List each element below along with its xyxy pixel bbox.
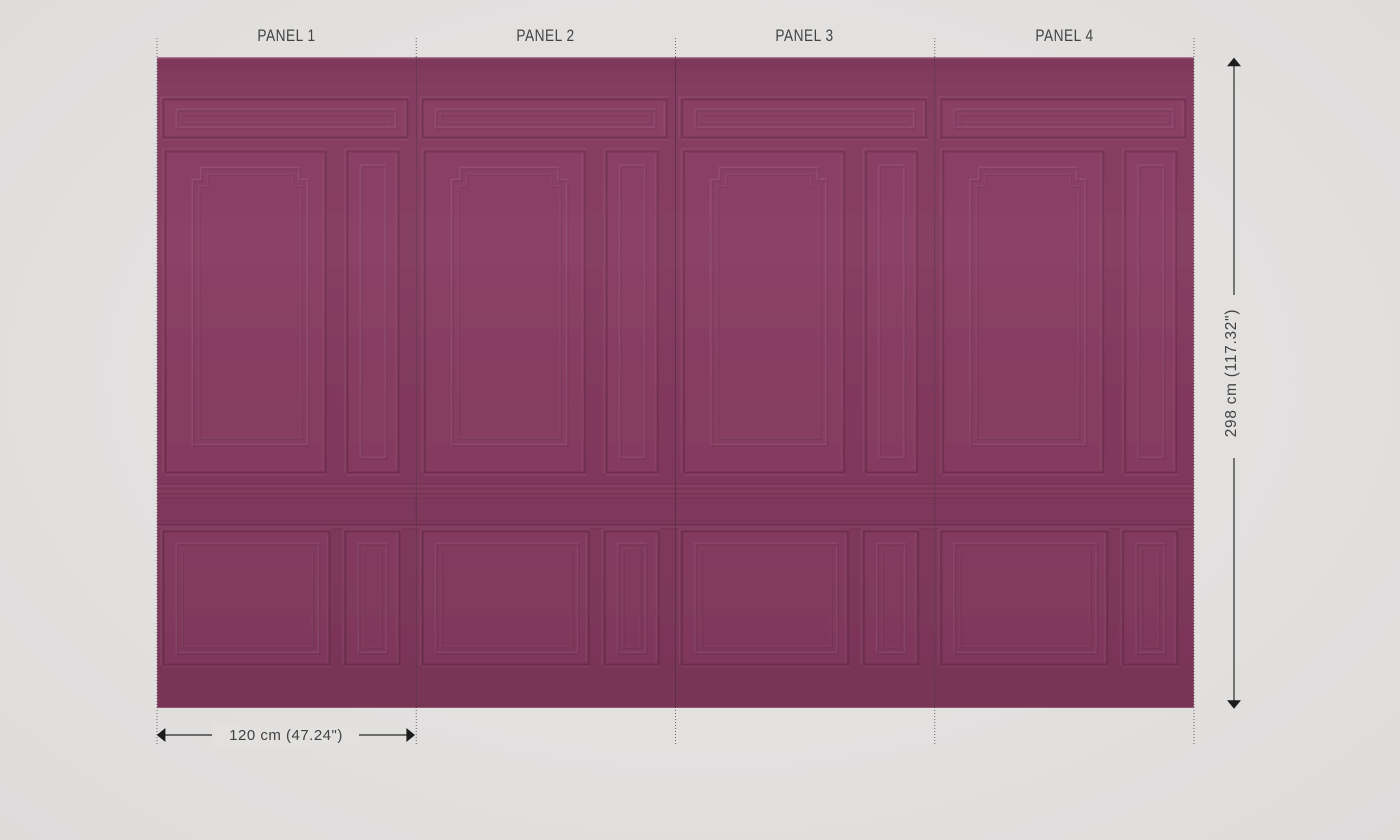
svg-text:120 cm (47.24"): 120 cm (47.24") (229, 727, 343, 744)
svg-text:298 cm (117.32"): 298 cm (117.32") (1223, 309, 1240, 437)
